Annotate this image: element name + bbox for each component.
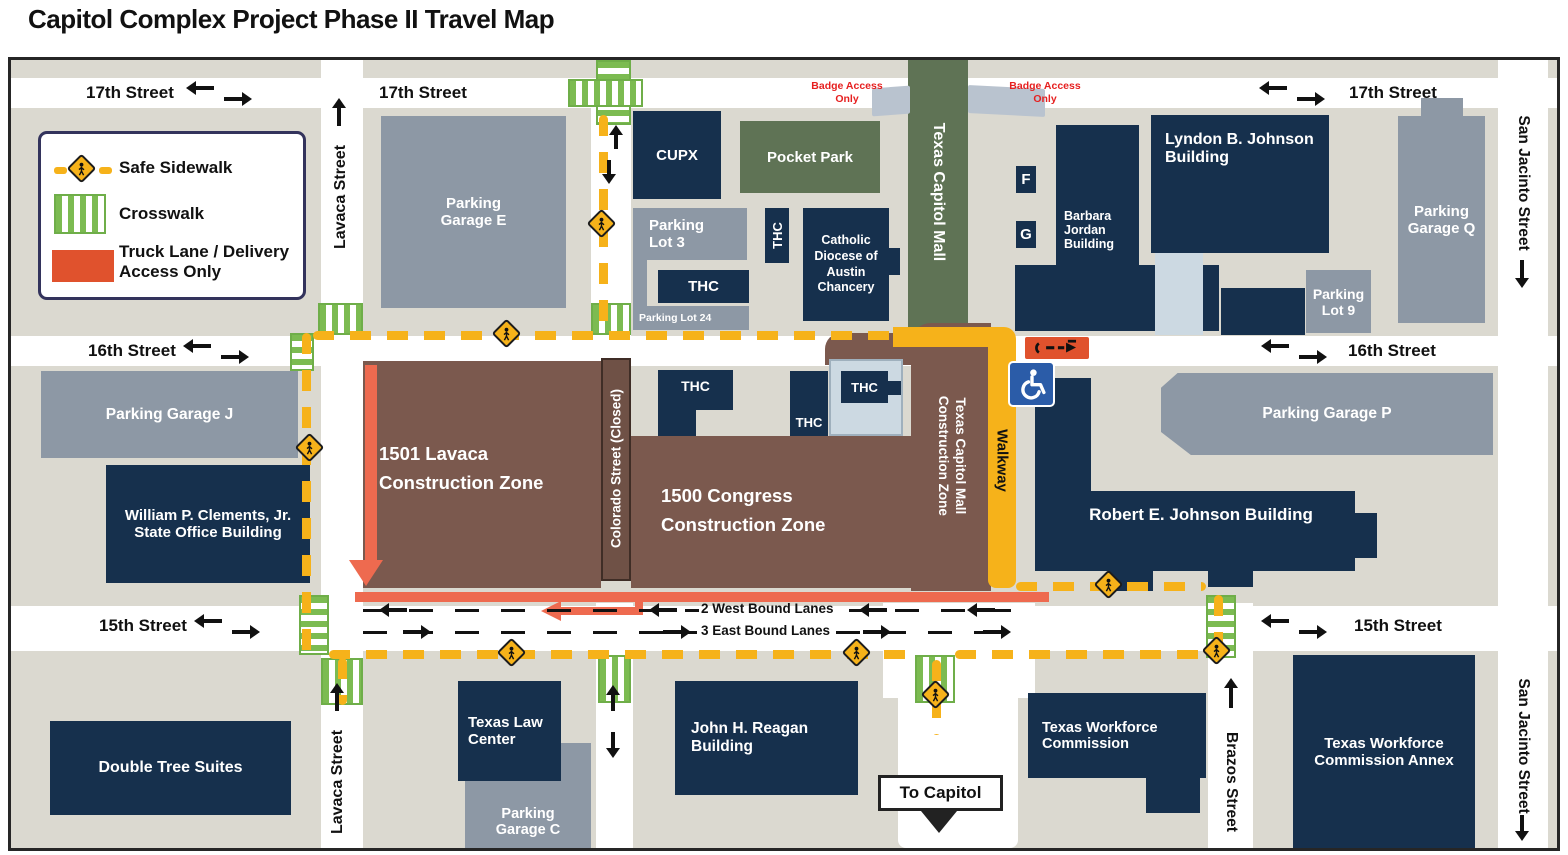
building-catholic-diocese-notch (889, 248, 900, 275)
truck-lane-sign-icon (1025, 337, 1089, 359)
building-lbj-annex (1221, 288, 1305, 335)
west-lane-arrow-icon (977, 608, 995, 612)
legend-truck-lane-label: Truck Lane / Delivery Access Only (119, 242, 301, 283)
pedestrian-sign-icon (295, 433, 325, 463)
building-texas-law: Texas Law Center (458, 681, 561, 781)
street-label-15th-left: 15th Street (99, 616, 187, 636)
building-parking-garage-j: Parking Garage J (41, 371, 298, 458)
to-capitol-pointer-icon (921, 811, 957, 833)
street-label-17th-left: 17th Street (86, 83, 174, 103)
street-label-lavaca-top: Lavaca Street (332, 132, 350, 262)
f-label: F (1021, 171, 1030, 188)
pocket-park-label: Pocket Park (767, 149, 853, 166)
barbara-jordan-label: Barbara Jordan Building (1064, 209, 1126, 251)
street-label-san-jacinto-top: San Jacinto Street (1514, 99, 1532, 267)
crosswalk-icon (568, 79, 643, 107)
parking-lot-24-label: Parking Lot 24 (639, 312, 711, 324)
thc-label: THC (688, 278, 719, 295)
pocket-park: Pocket Park (740, 121, 880, 193)
direction-arrow-icon (204, 619, 222, 623)
east-lane-arrow-icon (663, 630, 681, 634)
badge-access-label-left: Badge Access Only (808, 80, 886, 105)
building-rej-east-tab (1355, 513, 1377, 558)
west-lanes-label: 2 West Bound Lanes (701, 601, 834, 616)
legend: Safe Sidewalk Crosswalk Truck Lane / Del… (38, 131, 306, 300)
building-twc-annex: Texas Workforce Commission Annex (1293, 655, 1475, 848)
legend-crosswalk-label: Crosswalk (119, 204, 204, 224)
one-way-up-arrow-icon (614, 135, 618, 149)
building-parking-garage-e: Parking Garage E (381, 116, 566, 308)
map-canvas: Pocket Park Badge Access Only Badge Acce… (8, 57, 1560, 851)
safe-sidewalk-path (955, 650, 1206, 659)
building-catholic-diocese: Catholic Diocese of Austin Chancery (803, 208, 889, 321)
direction-arrow-icon (1297, 97, 1315, 101)
zone-tcm-label: Texas Capitol Mall Construction Zone (934, 382, 968, 530)
building-lbj: Lyndon B. Johnson Building (1151, 115, 1329, 253)
street-law-center-side (596, 603, 633, 848)
thc-label: THC (796, 415, 823, 430)
building-double-tree: Double Tree Suites (50, 721, 291, 815)
safe-sidewalk-path (313, 331, 901, 340)
building-rej-main (1091, 491, 1355, 571)
wheelchair-icon (1008, 361, 1055, 407)
building-thc-5: THC (841, 371, 888, 403)
street-label-colorado-closed: Colorado Street (Closed) (609, 376, 624, 562)
safe-sidewalk-swatch (99, 167, 112, 174)
reagan-label: John H. Reagan Building (691, 720, 821, 756)
pedestrian-sign-icon (67, 154, 97, 184)
safe-sidewalk-path (329, 650, 915, 659)
parking-garage-e-label: Parking Garage E (431, 195, 516, 229)
to-capitol-sign: To Capitol (878, 775, 1003, 811)
one-way-up-arrow-icon (611, 695, 615, 711)
safe-sidewalk-swatch (54, 167, 67, 174)
building-g-marker: G (1016, 221, 1036, 248)
one-way-down-arrow-icon (607, 160, 611, 174)
street-label-16th-left: 16th Street (88, 341, 176, 361)
direction-arrow-icon (1299, 355, 1317, 359)
street-label-17th-center: 17th Street (379, 83, 467, 103)
rej-label: Robert E. Johnson Building (1051, 505, 1351, 525)
building-clements: William P. Clements, Jr. State Office Bu… (106, 465, 310, 583)
building-reagan: John H. Reagan Building (675, 681, 858, 795)
building-parking-garage-q: Parking Garage Q (1398, 116, 1485, 323)
east-lanes-label: 3 East Bound Lanes (701, 623, 830, 638)
east-lane-arrow-icon (863, 630, 881, 634)
zone-1500-label: 1500 Congress Construction Zone (661, 482, 876, 539)
parking-garage-j-label: Parking Garage J (106, 406, 234, 424)
parking-lot-9-label: Parking Lot 9 (1311, 286, 1367, 318)
thc-label: THC (681, 378, 710, 394)
one-way-up-arrow-icon (337, 108, 341, 126)
east-lane-arrow-icon (403, 630, 421, 634)
clements-label: William P. Clements, Jr. State Office Bu… (113, 507, 303, 541)
parking-garage-p-label: Parking Garage P (1262, 405, 1391, 423)
safe-sidewalk-path (302, 333, 311, 655)
street-label-san-jacinto-bottom: San Jacinto Street (1514, 662, 1532, 830)
street-label-16th-right: 16th Street (1348, 341, 1436, 361)
building-parking-lot-3-strip (633, 260, 647, 306)
street-label-lavaca-bottom: Lavaca Street (329, 717, 347, 847)
parking-garage-c-label: Parking Garage C (488, 806, 568, 838)
building-thc-4: THC (790, 371, 828, 436)
travel-map-page: Capitol Complex Project Phase II Travel … (0, 0, 1568, 855)
legend-safe-sidewalk-label: Safe Sidewalk (119, 158, 232, 178)
badge-access-label-right: Badge Access Only (1006, 80, 1084, 105)
crosswalk-swatch (54, 194, 106, 234)
building-connector (1155, 253, 1203, 335)
west-lane-arrow-icon (659, 608, 677, 612)
cupx-label: CUPX (656, 147, 698, 164)
one-way-down-arrow-icon (1520, 815, 1524, 831)
direction-arrow-icon (232, 630, 250, 634)
west-lane-arrow-icon (869, 608, 887, 612)
building-parking-lot-3: Parking Lot 3 (633, 208, 747, 260)
one-way-down-arrow-icon (1520, 260, 1524, 278)
parking-lot-3-label: Parking Lot 3 (649, 217, 719, 251)
truck-route-arrow (365, 365, 377, 560)
building-parking-lot-24: Parking Lot 24 (633, 306, 749, 330)
truck-lane-swatch (52, 250, 114, 282)
direction-arrow-icon (224, 97, 242, 101)
texas-capitol-mall-label: Texas Capitol Mall (929, 108, 947, 276)
direction-arrow-icon (193, 344, 211, 348)
thc-label: THC (770, 222, 785, 249)
street-label-brazos: Brazos Street (1222, 708, 1240, 851)
building-cupx: CUPX (633, 111, 721, 199)
truck-route-arrowhead-icon (349, 560, 383, 586)
direction-arrow-icon (1299, 630, 1317, 634)
twc-label: Texas Workforce Commission (1042, 720, 1172, 752)
building-parking-garage-p: Parking Garage P (1161, 373, 1493, 455)
direction-arrow-icon (1271, 344, 1289, 348)
one-way-up-arrow-icon (1229, 688, 1233, 708)
building-rej-tooth (1208, 571, 1253, 587)
east-lane-arrow-icon (983, 630, 1001, 634)
double-tree-label: Double Tree Suites (98, 759, 242, 777)
building-thc-2: THC (658, 270, 749, 303)
building-parking-lot-9: Parking Lot 9 (1306, 270, 1371, 333)
twc-annex-label: Texas Workforce Commission Annex (1309, 735, 1459, 769)
lbj-label: Lyndon B. Johnson Building (1165, 131, 1315, 167)
direction-arrow-icon (196, 86, 214, 90)
building-barbara-jordan: Barbara Jordan Building (1056, 125, 1139, 265)
street-to-capitol (898, 697, 1018, 848)
one-way-down-arrow-icon (611, 732, 615, 748)
thc-label: THC (851, 380, 878, 395)
direction-arrow-icon (1271, 619, 1289, 623)
building-twc: Texas Workforce Commission (1028, 693, 1206, 778)
parking-garage-q-label: Parking Garage Q (1402, 203, 1482, 237)
walkway-label: Walkway (994, 416, 1011, 506)
building-f-marker: F (1016, 166, 1036, 193)
one-way-up-arrow-icon (335, 693, 339, 711)
zone-1501-label: 1501 Lavaca Construction Zone (379, 440, 589, 497)
west-lane-arrow-icon (389, 608, 407, 612)
building-thc-3-notch (696, 410, 733, 436)
building-thc-tall: THC (765, 208, 789, 263)
direction-arrow-icon (221, 355, 239, 359)
g-label: G (1020, 226, 1032, 243)
street-label-15th-right: 15th Street (1354, 616, 1442, 636)
to-capitol-label: To Capitol (900, 783, 982, 803)
texas-law-label: Texas Law Center (468, 714, 548, 748)
building-thc-5-tab (888, 381, 901, 395)
building-twc-tab (1146, 778, 1200, 813)
street-label-17th-right: 17th Street (1349, 83, 1437, 103)
page-title: Capitol Complex Project Phase II Travel … (28, 4, 554, 35)
direction-arrow-icon (1269, 86, 1287, 90)
catholic-diocese-label: Catholic Diocese of Austin Chancery (810, 233, 882, 296)
safe-sidewalk-path (338, 658, 347, 705)
